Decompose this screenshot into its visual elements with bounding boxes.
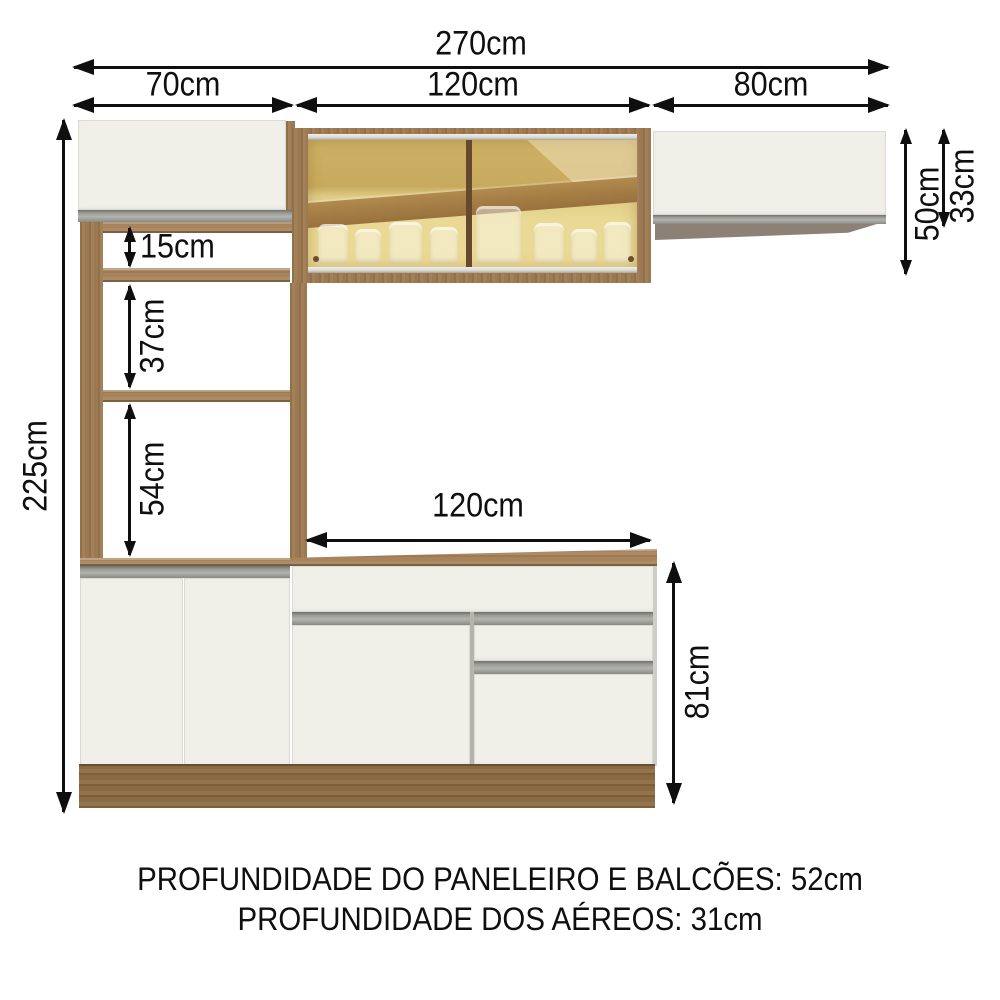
depth-note-cabinets: PROFUNDIDADE DO PANELEIRO E BALCÕES: 52c…: [40, 861, 960, 898]
glass-door-knob-right: [628, 256, 634, 262]
jar-shape: [604, 222, 631, 264]
right-aerial-handle-strip: [653, 215, 886, 224]
left-upper-cabinet-door: [78, 120, 286, 210]
glass-cabinet-glass: [308, 140, 637, 269]
dim-arrow-total-height: [62, 120, 65, 812]
dim-label-right-aerial-height: 33cm: [944, 149, 983, 224]
jar-shape: [318, 224, 348, 264]
dim-arrow-glass-aerial-height: [904, 130, 907, 274]
jar-shape: [476, 206, 521, 264]
kitchen-cabinet-dimension-diagram: 270cm 70cm 120cm 80cm 225cm 15cm 37cm 54…: [0, 0, 1000, 1000]
counter-drawer-handle-strip: [474, 661, 653, 674]
counter-right-edge: [653, 566, 657, 766]
counter-section-divider: [470, 612, 474, 766]
right-aerial-door: [653, 131, 886, 215]
jar-shape: [389, 222, 422, 264]
dim-label-counter-width: 120cm: [432, 487, 524, 526]
counter-handle-strip-left: [292, 612, 470, 625]
counter-drawer-top: [474, 625, 653, 661]
left-kick-base: [79, 764, 292, 808]
glass-cabinet-bottom-rail: [308, 267, 637, 273]
left-lower-cabinet-door-right: [184, 578, 290, 767]
dim-label-left-section: 70cm: [146, 66, 221, 105]
jar-shape: [571, 229, 597, 264]
dim-label-niche-middle: 37cm: [134, 299, 173, 374]
left-lower-cabinet-top-edge: [80, 558, 290, 566]
dim-arrow-counter-height: [672, 563, 675, 803]
counter-kick-base: [292, 764, 655, 808]
open-shelf-1: [103, 268, 290, 282]
glass-interior-back-shelf: [308, 177, 637, 228]
right-aerial-underside: [655, 224, 877, 240]
dim-label-glass-aerial-height: 50cm: [909, 167, 948, 242]
left-shelf-frame-left-post: [80, 222, 103, 558]
open-shelf-2: [103, 390, 290, 402]
left-lower-cabinet-door-left: [80, 578, 183, 767]
depth-note-aerials: PROFUNDIDADE DOS AÉREOS: 31cm: [40, 901, 960, 938]
dim-label-middle-section: 120cm: [427, 66, 519, 105]
support-column: [290, 283, 307, 558]
dim-arrow-niche-bottom: [128, 405, 131, 555]
dim-label-niche-top: 15cm: [140, 228, 215, 267]
dim-label-total-height: 225cm: [17, 420, 56, 512]
dim-label-counter-height: 81cm: [679, 645, 718, 720]
dim-arrow-counter-width: [307, 539, 650, 542]
dim-arrow-niche-middle: [128, 286, 131, 387]
dim-label-total-width: 270cm: [435, 25, 527, 64]
left-upper-cabinet-handle-strip: [78, 210, 295, 222]
counter-drawer-bottom: [474, 674, 653, 766]
jar-shape: [430, 227, 458, 264]
jar-shape: [355, 229, 381, 264]
dim-label-right-section: 80cm: [734, 66, 809, 105]
glass-door-knob-left: [313, 256, 319, 262]
counter-handle-strip-right: [474, 612, 653, 625]
counter-apron-panel: [292, 566, 654, 612]
counter-door: [292, 625, 470, 766]
glass-door-divider: [466, 140, 472, 269]
left-lower-cabinet-handle-strip: [80, 566, 290, 578]
countertop: [290, 549, 657, 566]
dim-label-niche-bottom: 54cm: [134, 442, 173, 517]
dim-arrow-niche-top: [128, 228, 131, 266]
jar-shape: [534, 223, 564, 264]
